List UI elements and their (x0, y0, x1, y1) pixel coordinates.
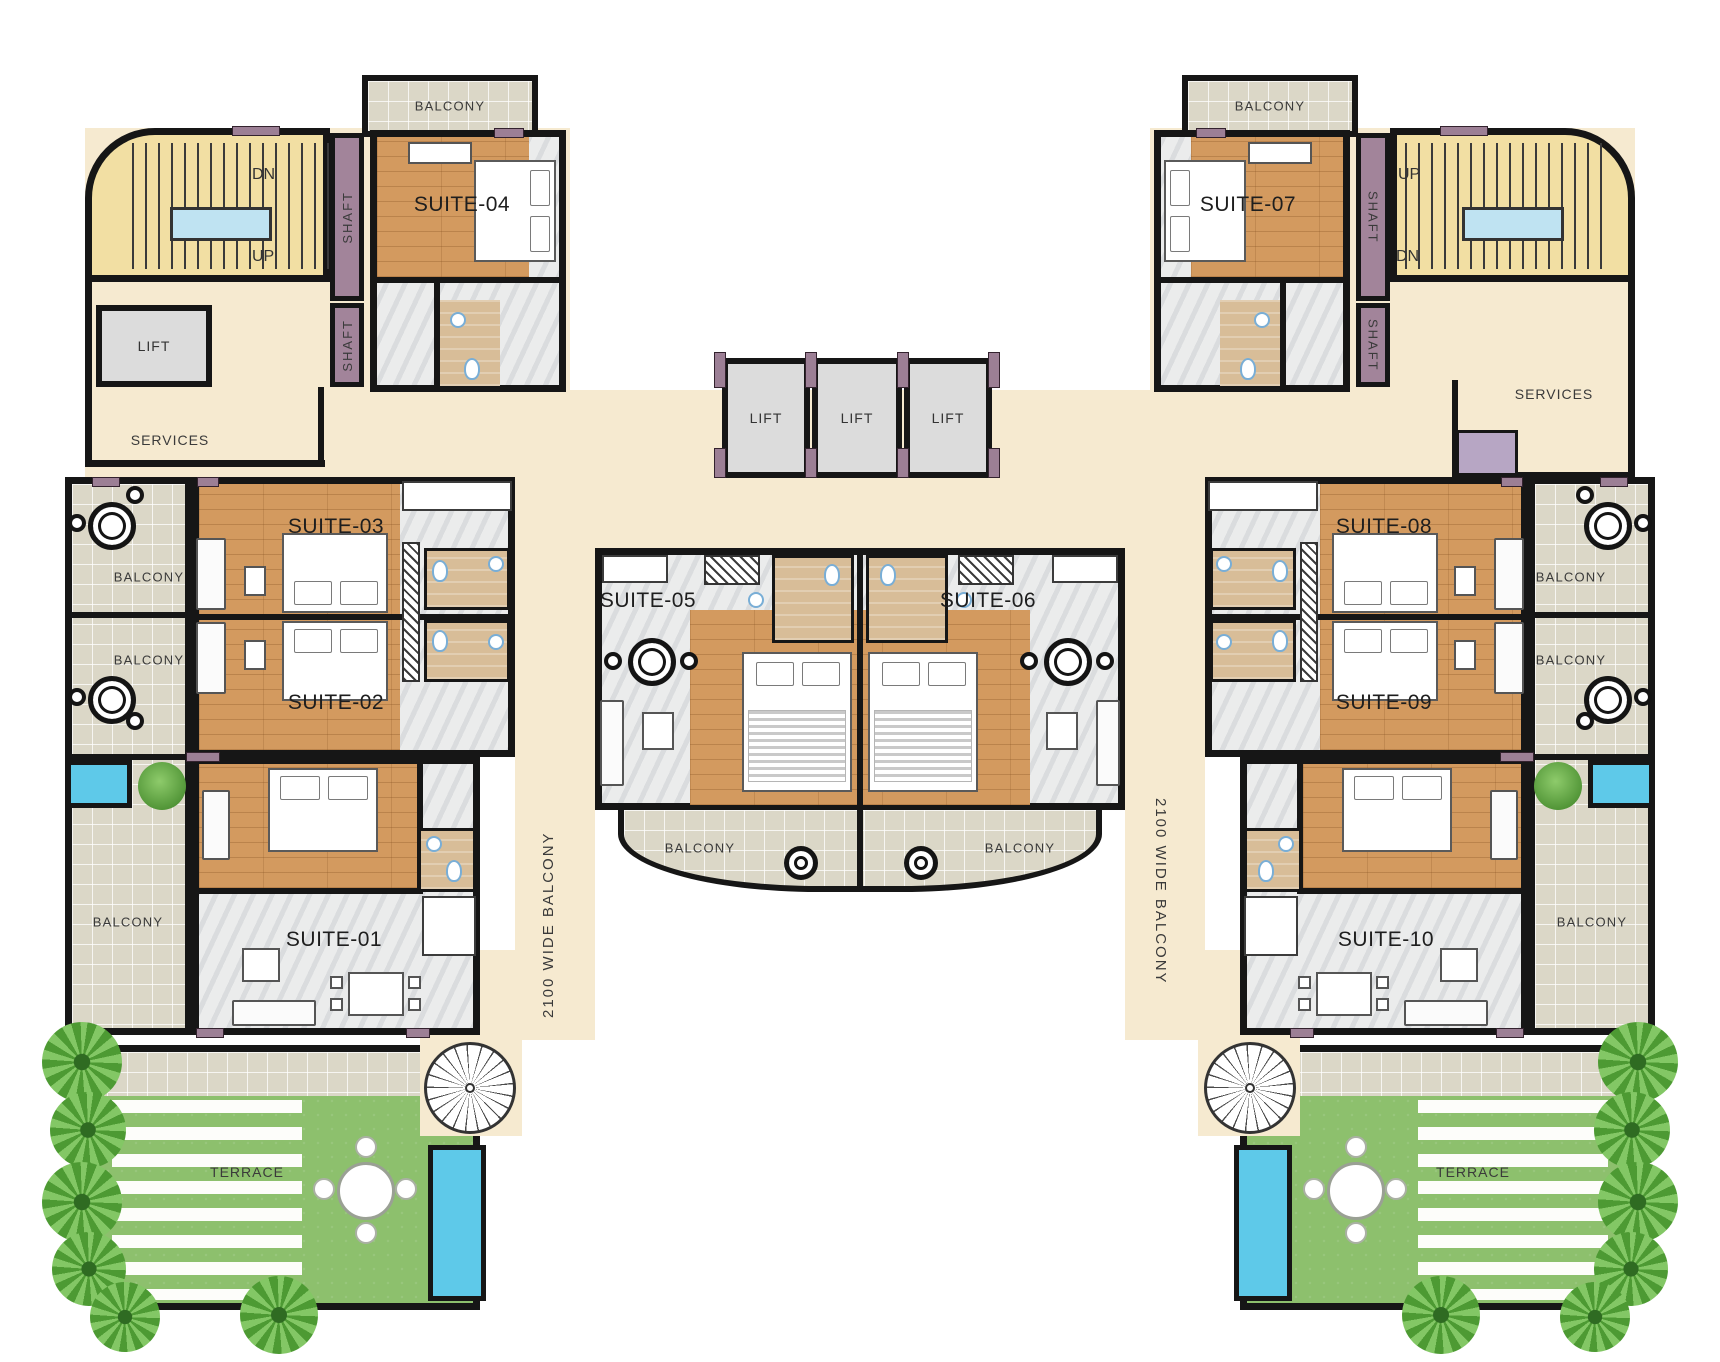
pillow (928, 662, 966, 686)
wall-accent (92, 477, 120, 487)
sofa (600, 700, 624, 786)
sink (1278, 836, 1294, 852)
services-left-label: SERVICES (131, 432, 210, 448)
sofa (202, 790, 230, 860)
dining-table-round (1044, 638, 1092, 686)
palm-tree (1598, 1022, 1678, 1102)
bed (282, 621, 388, 701)
sink (488, 634, 504, 650)
wall-accent (1496, 1028, 1524, 1038)
sofa (1404, 1000, 1488, 1026)
balcony-table (1584, 502, 1632, 550)
suite-08-label: SUITE-08 (1336, 515, 1432, 539)
deck-stripes (112, 1100, 302, 1300)
chair (1376, 998, 1389, 1011)
wall (318, 387, 324, 463)
kitchen-counter (1208, 481, 1318, 511)
wall-accent (1290, 1028, 1314, 1038)
tv-unit (244, 640, 266, 670)
wall-accent (1501, 477, 1523, 487)
pillow (340, 581, 378, 605)
lift-label: LIFT (750, 410, 783, 426)
suite-06-label: SUITE-06 (940, 589, 1036, 613)
sink (450, 312, 466, 328)
spiral-center (1245, 1083, 1255, 1093)
palm-tree (90, 1282, 160, 1352)
stair-treads (132, 143, 330, 269)
chair (126, 712, 144, 730)
balcony-label: BALCONY (114, 653, 185, 668)
wall-accent (714, 448, 726, 478)
sofa (232, 1000, 316, 1026)
chair (1298, 998, 1311, 1011)
wall (1628, 282, 1635, 478)
toilet (880, 564, 896, 586)
lift-center-1: LIFT (722, 358, 810, 478)
toilet (824, 564, 840, 586)
balcony-label: BALCONY (1557, 915, 1628, 930)
suite-04-label: SUITE-04 (414, 193, 510, 217)
tv-unit (1046, 712, 1078, 750)
stair-dn-label: DN (1396, 248, 1419, 266)
balcony-label: BALCONY (415, 99, 486, 114)
duvet (748, 710, 846, 782)
sink (426, 836, 442, 852)
shaft-left-2: SHAFT (330, 303, 364, 387)
shaft-label: SHAFT (1366, 191, 1381, 244)
wall-accent (197, 477, 219, 487)
chair (408, 976, 421, 989)
terrace-table (1327, 1162, 1385, 1220)
wall (65, 612, 192, 618)
sofa (1494, 538, 1524, 610)
wall (85, 282, 92, 466)
shaft-right-1: SHAFT (1356, 133, 1390, 301)
chair (1096, 652, 1114, 670)
stair-dn-label: DN (252, 166, 275, 184)
chair (408, 998, 421, 1011)
chair (330, 976, 343, 989)
wall-accent (805, 352, 817, 388)
chair (1020, 652, 1038, 670)
dining-table-round (628, 638, 676, 686)
pillow (530, 216, 550, 252)
pillow (1390, 629, 1428, 653)
pillow (1344, 581, 1382, 605)
pillow (802, 662, 840, 686)
tv-unit (1454, 640, 1476, 670)
wall (857, 810, 863, 890)
pillow (1354, 776, 1394, 800)
balcony-label: BALCONY (665, 841, 736, 856)
pillow (294, 629, 332, 653)
chair (355, 1222, 377, 1244)
pillow (1344, 629, 1382, 653)
chair (1385, 1178, 1407, 1200)
wardrobe (958, 555, 1014, 585)
wall-accent (897, 448, 909, 478)
sink (488, 556, 504, 572)
toilet (432, 630, 448, 652)
stair-landing (1462, 207, 1564, 241)
wall (1280, 283, 1286, 387)
suite-06-bathroom (866, 555, 948, 643)
wall (85, 460, 325, 467)
bed (742, 652, 852, 792)
terrace-pool (1234, 1145, 1292, 1301)
wall-accent (1196, 128, 1226, 138)
chair (1576, 486, 1594, 504)
wall-accent (186, 752, 220, 762)
toilet (1258, 860, 1274, 882)
floor-plan-canvas: DN UP UP DN SHAFT SHAFT SHAFT SHAFT LIFT… (0, 0, 1720, 1362)
chair (330, 998, 343, 1011)
stair-up-label: UP (252, 248, 274, 266)
kitchen-counter (1244, 896, 1298, 956)
desk (408, 142, 472, 164)
kitchen-counter (402, 481, 512, 511)
tv-unit (244, 566, 266, 596)
sofa (1490, 790, 1518, 860)
balcony-label: BALCONY (93, 915, 164, 930)
pillow (1402, 776, 1442, 800)
chair (355, 1136, 377, 1158)
terrace-label: TERRACE (210, 1164, 284, 1180)
suite-07-label: SUITE-07 (1200, 193, 1296, 217)
suite-03-label: SUITE-03 (288, 515, 384, 539)
kitchen-counter (602, 555, 668, 583)
suite-09-label: SUITE-09 (1336, 691, 1432, 715)
toilet (1272, 560, 1288, 582)
wall-accent (1440, 126, 1488, 136)
stair-treads (1405, 143, 1603, 269)
balcony-label: BALCONY (1536, 653, 1607, 668)
suite-10-bathroom (1244, 828, 1302, 892)
pillow (1170, 216, 1190, 252)
palm-tree (1594, 1092, 1670, 1168)
wall (1297, 888, 1521, 894)
terrace-table (337, 1162, 395, 1220)
balcony-label: BALCONY (114, 570, 185, 585)
balcony-table (784, 846, 818, 880)
wardrobe (704, 555, 760, 585)
chair (1345, 1136, 1367, 1158)
spiral-staircase (424, 1042, 516, 1134)
tree (138, 762, 186, 810)
chair (1298, 976, 1311, 989)
chair (604, 652, 622, 670)
pillow (756, 662, 794, 686)
palm-tree (42, 1162, 122, 1242)
tv-unit (1440, 948, 1478, 982)
chair (1345, 1222, 1367, 1244)
wide-balcony-label-right: 2100 WIDE BALCONY (1152, 798, 1169, 1018)
balcony-table (904, 846, 938, 880)
pillow (1390, 581, 1428, 605)
stair-up-label: UP (1398, 166, 1420, 184)
balcony-label: BALCONY (985, 841, 1056, 856)
chair (126, 486, 144, 504)
wall-accent (232, 126, 280, 136)
wall-accent (897, 352, 909, 388)
wall-accent (1600, 477, 1628, 487)
shaft-label: SHAFT (1366, 319, 1381, 372)
deck-stripes (1418, 1100, 1608, 1300)
chair (395, 1178, 417, 1200)
pillow (882, 662, 920, 686)
wall-accent (406, 1028, 430, 1038)
bed (1342, 768, 1452, 852)
stair-landing (170, 207, 272, 241)
pillow (530, 170, 550, 206)
lift-left: LIFT (96, 305, 212, 387)
balcony-table (88, 502, 136, 550)
pillow (1170, 170, 1190, 206)
pillow (294, 581, 332, 605)
lift-center-3: LIFT (904, 358, 992, 478)
wall (857, 553, 863, 810)
sofa (1494, 622, 1524, 694)
bed (282, 533, 388, 613)
tv-unit (242, 948, 280, 982)
bed (1332, 533, 1438, 613)
chair (68, 514, 86, 532)
toilet (446, 860, 462, 882)
palm-tree (50, 1092, 126, 1168)
chair (1634, 688, 1652, 706)
terrace-label: TERRACE (1436, 1164, 1510, 1180)
tree (1534, 762, 1582, 810)
wall (377, 277, 559, 283)
shaft-left-1: SHAFT (330, 133, 364, 301)
kitchen-counter (422, 896, 476, 956)
plunge-pool (66, 760, 132, 808)
tv-unit (1454, 566, 1476, 596)
pillow (340, 629, 378, 653)
shaft-right-2: SHAFT (1356, 303, 1390, 387)
staircase-top-right (1390, 128, 1635, 282)
dining-table (1316, 972, 1372, 1016)
lift-label: LIFT (841, 410, 874, 426)
suite-01-bathroom (418, 828, 476, 892)
chair (1376, 976, 1389, 989)
sofa (196, 538, 226, 610)
sofa (196, 622, 226, 694)
chair (680, 652, 698, 670)
terrace-tile-strip (1261, 1052, 1647, 1096)
plunge-pool (1588, 760, 1654, 808)
suite-01-label: SUITE-01 (286, 928, 382, 952)
palm-tree (1402, 1276, 1480, 1354)
tv-unit (642, 712, 674, 750)
bed (868, 652, 978, 792)
palm-tree (42, 1022, 122, 1102)
wall (199, 888, 423, 894)
services-right-label: SERVICES (1515, 386, 1594, 402)
lift-center-2: LIFT (812, 358, 902, 478)
wall (1528, 612, 1655, 618)
balcony-label: BALCONY (1536, 570, 1607, 585)
chair (1303, 1178, 1325, 1200)
palm-tree (240, 1276, 318, 1354)
pillow (328, 776, 368, 800)
pillow (280, 776, 320, 800)
lift-label: LIFT (932, 410, 965, 426)
sink (748, 592, 764, 608)
sink (1254, 312, 1270, 328)
balcony-label: BALCONY (1235, 99, 1306, 114)
toilet (464, 358, 480, 380)
spiral-center (465, 1083, 475, 1093)
wall-accent (714, 352, 726, 388)
wall-accent (988, 352, 1000, 388)
toilet (1240, 358, 1256, 380)
lift-label: LIFT (138, 338, 171, 354)
palm-tree (1598, 1162, 1678, 1242)
sink (1216, 556, 1232, 572)
suite-05-bathroom (772, 555, 854, 643)
shaft-label: SHAFT (340, 319, 355, 372)
palm-tree (1560, 1282, 1630, 1352)
chair (68, 688, 86, 706)
dining-table (348, 972, 404, 1016)
chair (1634, 514, 1652, 532)
wall (1161, 277, 1343, 283)
wall-accent (1500, 752, 1534, 762)
wall-accent (805, 448, 817, 478)
wall-accent (988, 448, 1000, 478)
spiral-staircase (1204, 1042, 1296, 1134)
toilet (432, 560, 448, 582)
wide-balcony-label-left: 2100 WIDE BALCONY (540, 798, 557, 1018)
suite-10-label: SUITE-10 (1338, 928, 1434, 952)
wardrobe (1300, 542, 1318, 682)
chair (1576, 712, 1594, 730)
wall-accent (494, 128, 524, 138)
kitchen-counter (1052, 555, 1118, 583)
terrace-pool (428, 1145, 486, 1301)
duvet (874, 710, 972, 782)
bed (268, 768, 378, 852)
terrace-tile-strip (87, 1052, 473, 1096)
services-lift-shaft (1456, 430, 1518, 476)
bed (1332, 621, 1438, 701)
staircase-top-left (85, 128, 330, 282)
desk (1248, 142, 1312, 164)
suite-02-label: SUITE-02 (288, 691, 384, 715)
suite-05-label: SUITE-05 (600, 589, 696, 613)
toilet (1272, 630, 1288, 652)
wardrobe (402, 542, 420, 682)
shaft-label: SHAFT (340, 191, 355, 244)
sink (1216, 634, 1232, 650)
chair (313, 1178, 335, 1200)
wall-accent (196, 1028, 224, 1038)
sofa (1096, 700, 1120, 786)
